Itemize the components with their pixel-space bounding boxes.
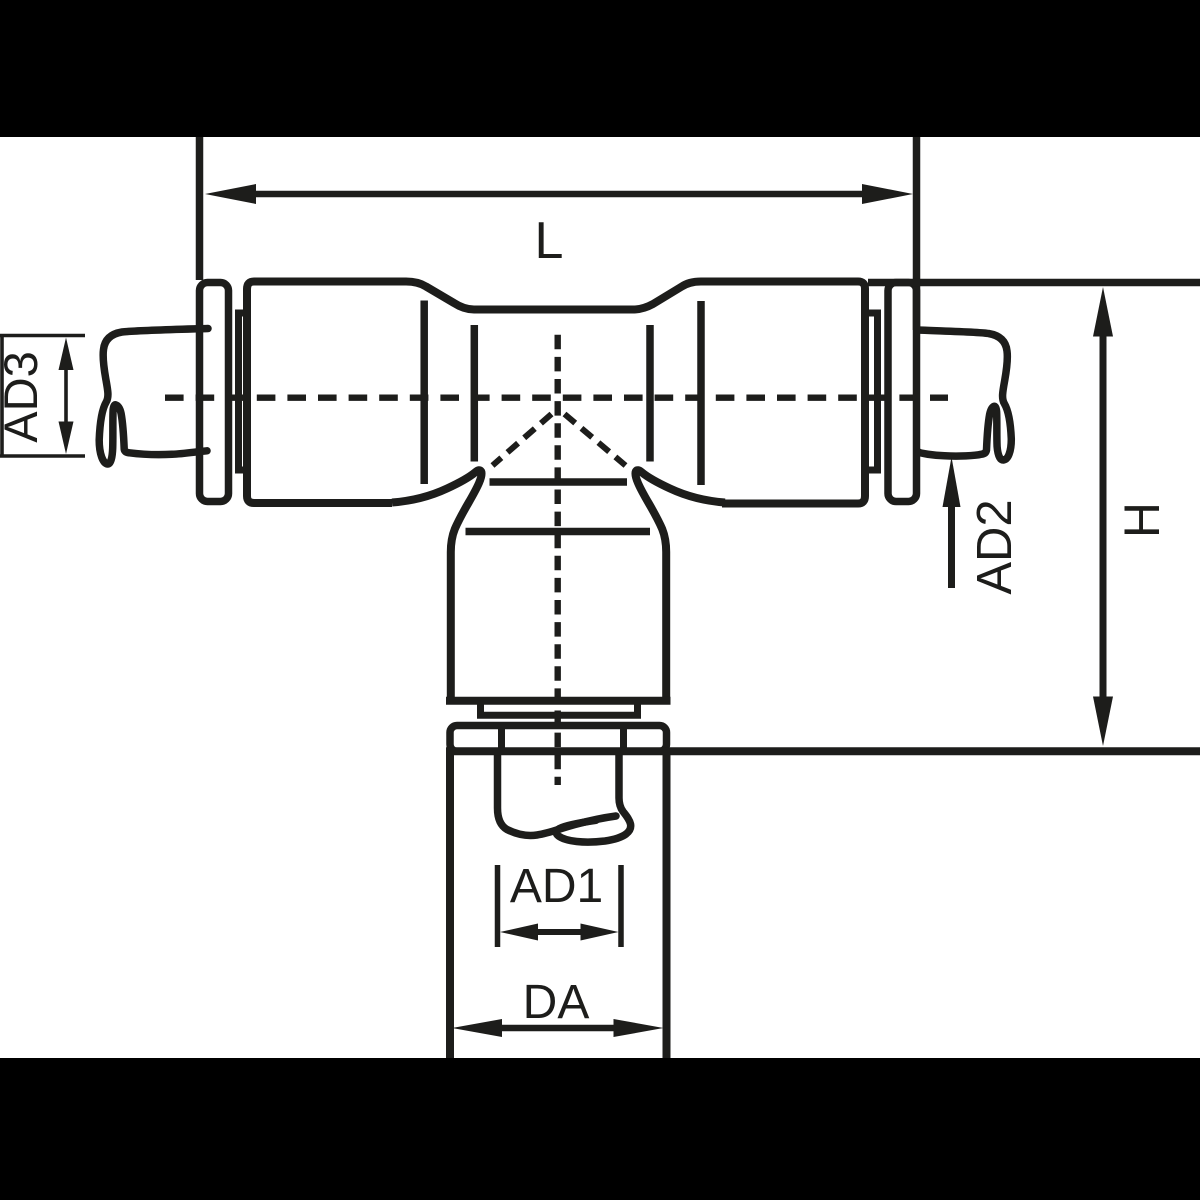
svg-text:AD1: AD1 xyxy=(510,860,603,913)
svg-text:AD2: AD2 xyxy=(968,499,1022,594)
svg-text:DA: DA xyxy=(523,976,590,1029)
svg-text:L: L xyxy=(535,212,564,270)
svg-text:AD3: AD3 xyxy=(0,351,47,442)
svg-text:H: H xyxy=(1114,502,1170,538)
